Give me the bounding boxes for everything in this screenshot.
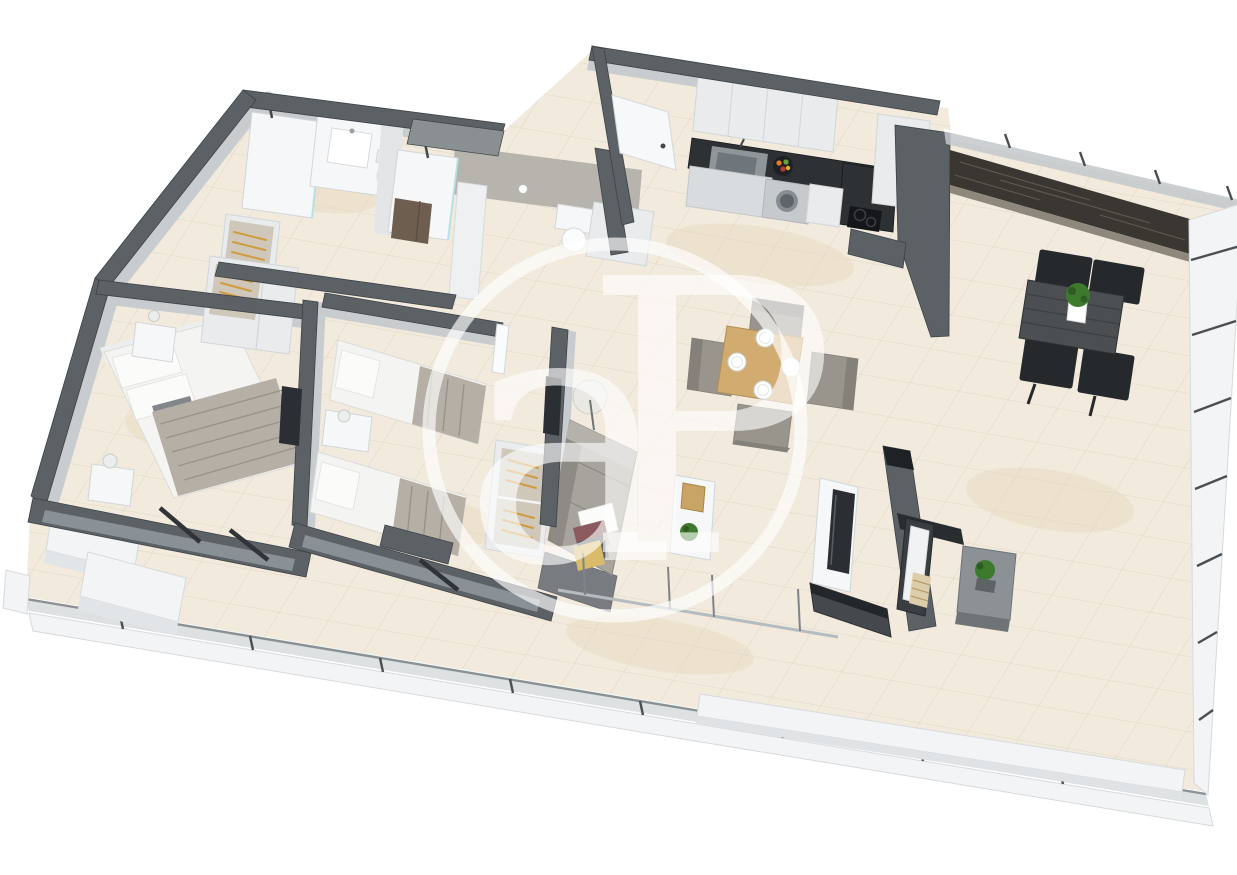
lamp — [103, 454, 117, 468]
east-railing — [1189, 203, 1237, 795]
lamp — [149, 311, 160, 322]
vanity-sink — [327, 128, 372, 168]
shower-tray — [242, 112, 322, 218]
side-table — [955, 546, 1016, 632]
terrace-plant — [1066, 283, 1090, 307]
nightstand — [132, 322, 176, 362]
door-handle — [661, 144, 666, 149]
floor-plan-canvas: a P — [0, 0, 1237, 875]
watermark-letter-p: P — [582, 199, 838, 642]
lamp — [338, 410, 350, 422]
nightstand — [88, 464, 134, 506]
side-table-plant — [975, 560, 995, 580]
east-railing-glass — [1189, 203, 1237, 795]
faucet — [350, 129, 355, 134]
toilet-paper — [519, 185, 528, 194]
outdoor-chair — [1080, 350, 1132, 398]
shower-tile-wall — [391, 198, 432, 244]
tv-bedroom1 — [279, 386, 302, 446]
floor-plan-render: a P — [0, 0, 1237, 875]
watermark-logo: a P — [429, 199, 838, 645]
fruit-bowl — [773, 156, 793, 176]
